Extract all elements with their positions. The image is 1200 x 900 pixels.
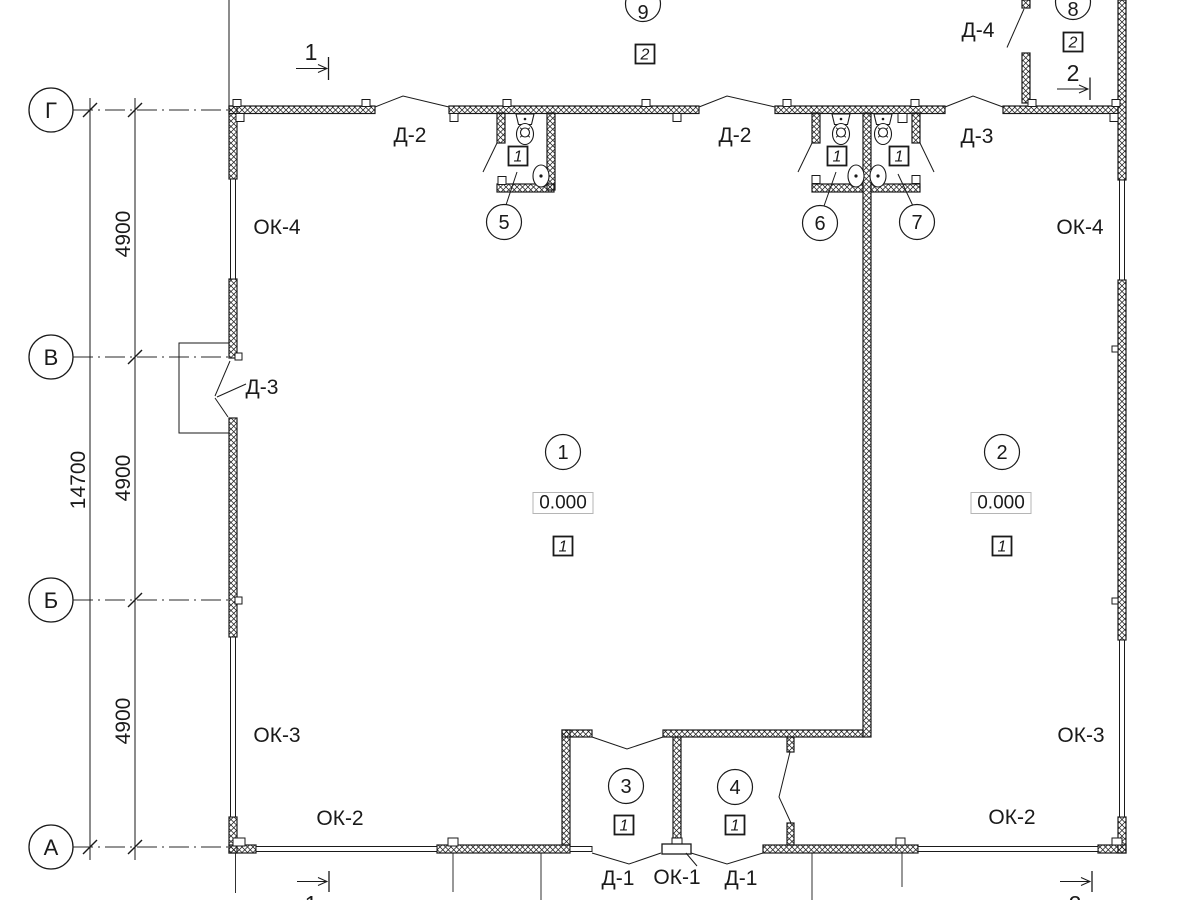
door-swing-wc7 (920, 143, 934, 172)
door-label-d2-left: Д-2 (394, 124, 427, 147)
door-label-d3-left: Д-3 (246, 376, 279, 399)
window-ok4-left (231, 179, 236, 279)
door-swing-room4 (779, 752, 791, 823)
door-d3-left-leader (217, 384, 246, 397)
section-marks: 1 2 1 2 (296, 39, 1092, 900)
room-5-number: 5 (498, 212, 509, 234)
window-label-ok4-right: ОК-4 (1056, 216, 1104, 239)
window-label-ok3-right: ОК-3 (1057, 724, 1104, 747)
wall-right-1 (1118, 0, 1126, 180)
wall-room4-top (663, 730, 863, 737)
section-2-bottom: 2 (1060, 871, 1092, 900)
wall-room3-top (562, 730, 592, 737)
room-2-number: 2 (996, 442, 1007, 464)
room-1-number: 1 (557, 442, 568, 464)
door-label-d3-top: Д-3 (961, 125, 994, 148)
window-ok2-left (256, 847, 437, 852)
drawing-sheet: Г В Б А 14700 4900 4900 4900 (0, 0, 1200, 900)
wall-left-2 (229, 279, 237, 358)
door-swing-d3-top (945, 96, 1003, 107)
window-ok1-leader (686, 853, 697, 866)
window-ok4-right (1120, 180, 1125, 280)
window-label-ok2-left: ОК-2 (316, 807, 363, 830)
section-1-bottom-label: 1 (305, 891, 318, 900)
axis-label-g: Г (45, 98, 57, 123)
sink-fixture-5 (533, 165, 549, 187)
section-2-top: 2 (1057, 60, 1090, 100)
room-4-number: 4 (729, 777, 740, 799)
door-label-d2-right: Д-2 (719, 124, 752, 147)
room-3-number: 3 (620, 776, 631, 798)
room-5-floor: 1 (514, 149, 523, 166)
toilet-fixture-6 (832, 114, 850, 145)
door-label-d4: Д-4 (962, 19, 995, 42)
wall-central (863, 113, 871, 737)
room-9-floor: 2 (640, 47, 650, 64)
door-swing-d2-right (699, 96, 775, 107)
window-ok2-right (918, 847, 1098, 852)
doors: Д-2 Д-2 Д-3 Д-4 Д-3 Д-1 Д-1 (179, 9, 1024, 890)
wall-room89-partition (1022, 53, 1030, 103)
axis-label-b: Б (44, 588, 58, 613)
wall-top-4 (1003, 106, 1118, 114)
section-1-top-label: 1 (305, 39, 318, 65)
wall-room3-left (562, 730, 570, 845)
dimension-lines: 14700 4900 4900 4900 (67, 98, 142, 860)
section-2-bottom-label: 2 (1069, 891, 1082, 900)
door-swing-room3-inner (592, 737, 663, 749)
axis-label-a: А (44, 835, 59, 860)
window-ok3-right (1120, 640, 1125, 817)
dim-seg-2: 4900 (112, 455, 135, 502)
wall-right-2 (1118, 280, 1126, 640)
sink-fixture-7 (870, 165, 886, 187)
window-label-ok3-left: ОК-3 (253, 724, 300, 747)
section-1-top: 1 (296, 39, 329, 80)
dim-seg-1: 4900 (112, 211, 135, 258)
section-1-bottom: 1 (297, 871, 329, 900)
window-label-ok1: ОК-1 (653, 866, 700, 889)
extension-lines (236, 853, 903, 900)
wall-top-2 (449, 106, 699, 114)
wall-bottom-4 (1098, 845, 1126, 853)
door-swing-d2-left (375, 96, 449, 107)
room-9-number: 9 (637, 2, 648, 24)
toilet-fixture-5 (516, 114, 534, 145)
floor-plan: Г В Б А 14700 4900 4900 4900 (0, 0, 1200, 900)
room-7-number: 7 (911, 212, 922, 234)
room-3-floor: 1 (620, 818, 629, 835)
door-swing-d1-left (592, 853, 661, 864)
section-2-top-label: 2 (1067, 60, 1080, 86)
door-swing-d3-left-leaf1 (215, 361, 230, 396)
room-8-floor: 2 (1068, 35, 1078, 52)
window-ok1 (662, 844, 691, 854)
wall-wc6-left (812, 113, 820, 143)
door-swing-d4 (1007, 9, 1024, 48)
room-7-floor: 1 (895, 149, 904, 166)
dim-seg-3: 4900 (112, 698, 135, 745)
door-label-d1-right: Д-1 (725, 867, 758, 890)
window-label-ok4-left: ОК-4 (253, 216, 301, 239)
wall-top-3 (775, 106, 945, 114)
dim-total: 14700 (67, 451, 90, 509)
wall-top-1 (229, 106, 375, 114)
room-8-number: 8 (1067, 0, 1078, 21)
wall-room89-stub (1022, 0, 1030, 8)
room-6-number: 6 (814, 213, 825, 235)
window-label-ok2-right: ОК-2 (988, 806, 1035, 829)
door-swing-wc5 (483, 143, 497, 172)
room-markers: 1 0.000 1 2 0.000 1 3 1 4 1 5 1 6 1 (487, 0, 1091, 835)
door-swing-wc6 (798, 143, 812, 172)
toilet-fixture-7 (874, 114, 892, 145)
door-swing-d3-left-leaf2 (215, 398, 228, 417)
wall-bottom-3 (763, 845, 918, 853)
room-6-floor: 1 (833, 149, 842, 166)
wall-wc5-left (497, 113, 505, 143)
room-2-elevation: 0.000 (977, 493, 1025, 514)
room-1-floor: 1 (559, 539, 568, 556)
axis-label-v: В (44, 345, 59, 370)
room-2-floor: 1 (998, 539, 1007, 556)
wall-wc7-right (912, 113, 920, 143)
door-swing-d1-right (691, 853, 763, 864)
wall-room4-right-b (787, 823, 794, 845)
door-label-d1-left: Д-1 (602, 867, 635, 890)
room-4-floor: 1 (731, 818, 740, 835)
sill-room3 (570, 847, 592, 852)
wall-room34-partition (673, 737, 681, 838)
wall-room4-right-a (787, 737, 794, 752)
room-1-elevation: 0.000 (539, 493, 587, 514)
window-ok3-left (231, 637, 236, 817)
sink-fixture-6 (848, 165, 864, 187)
